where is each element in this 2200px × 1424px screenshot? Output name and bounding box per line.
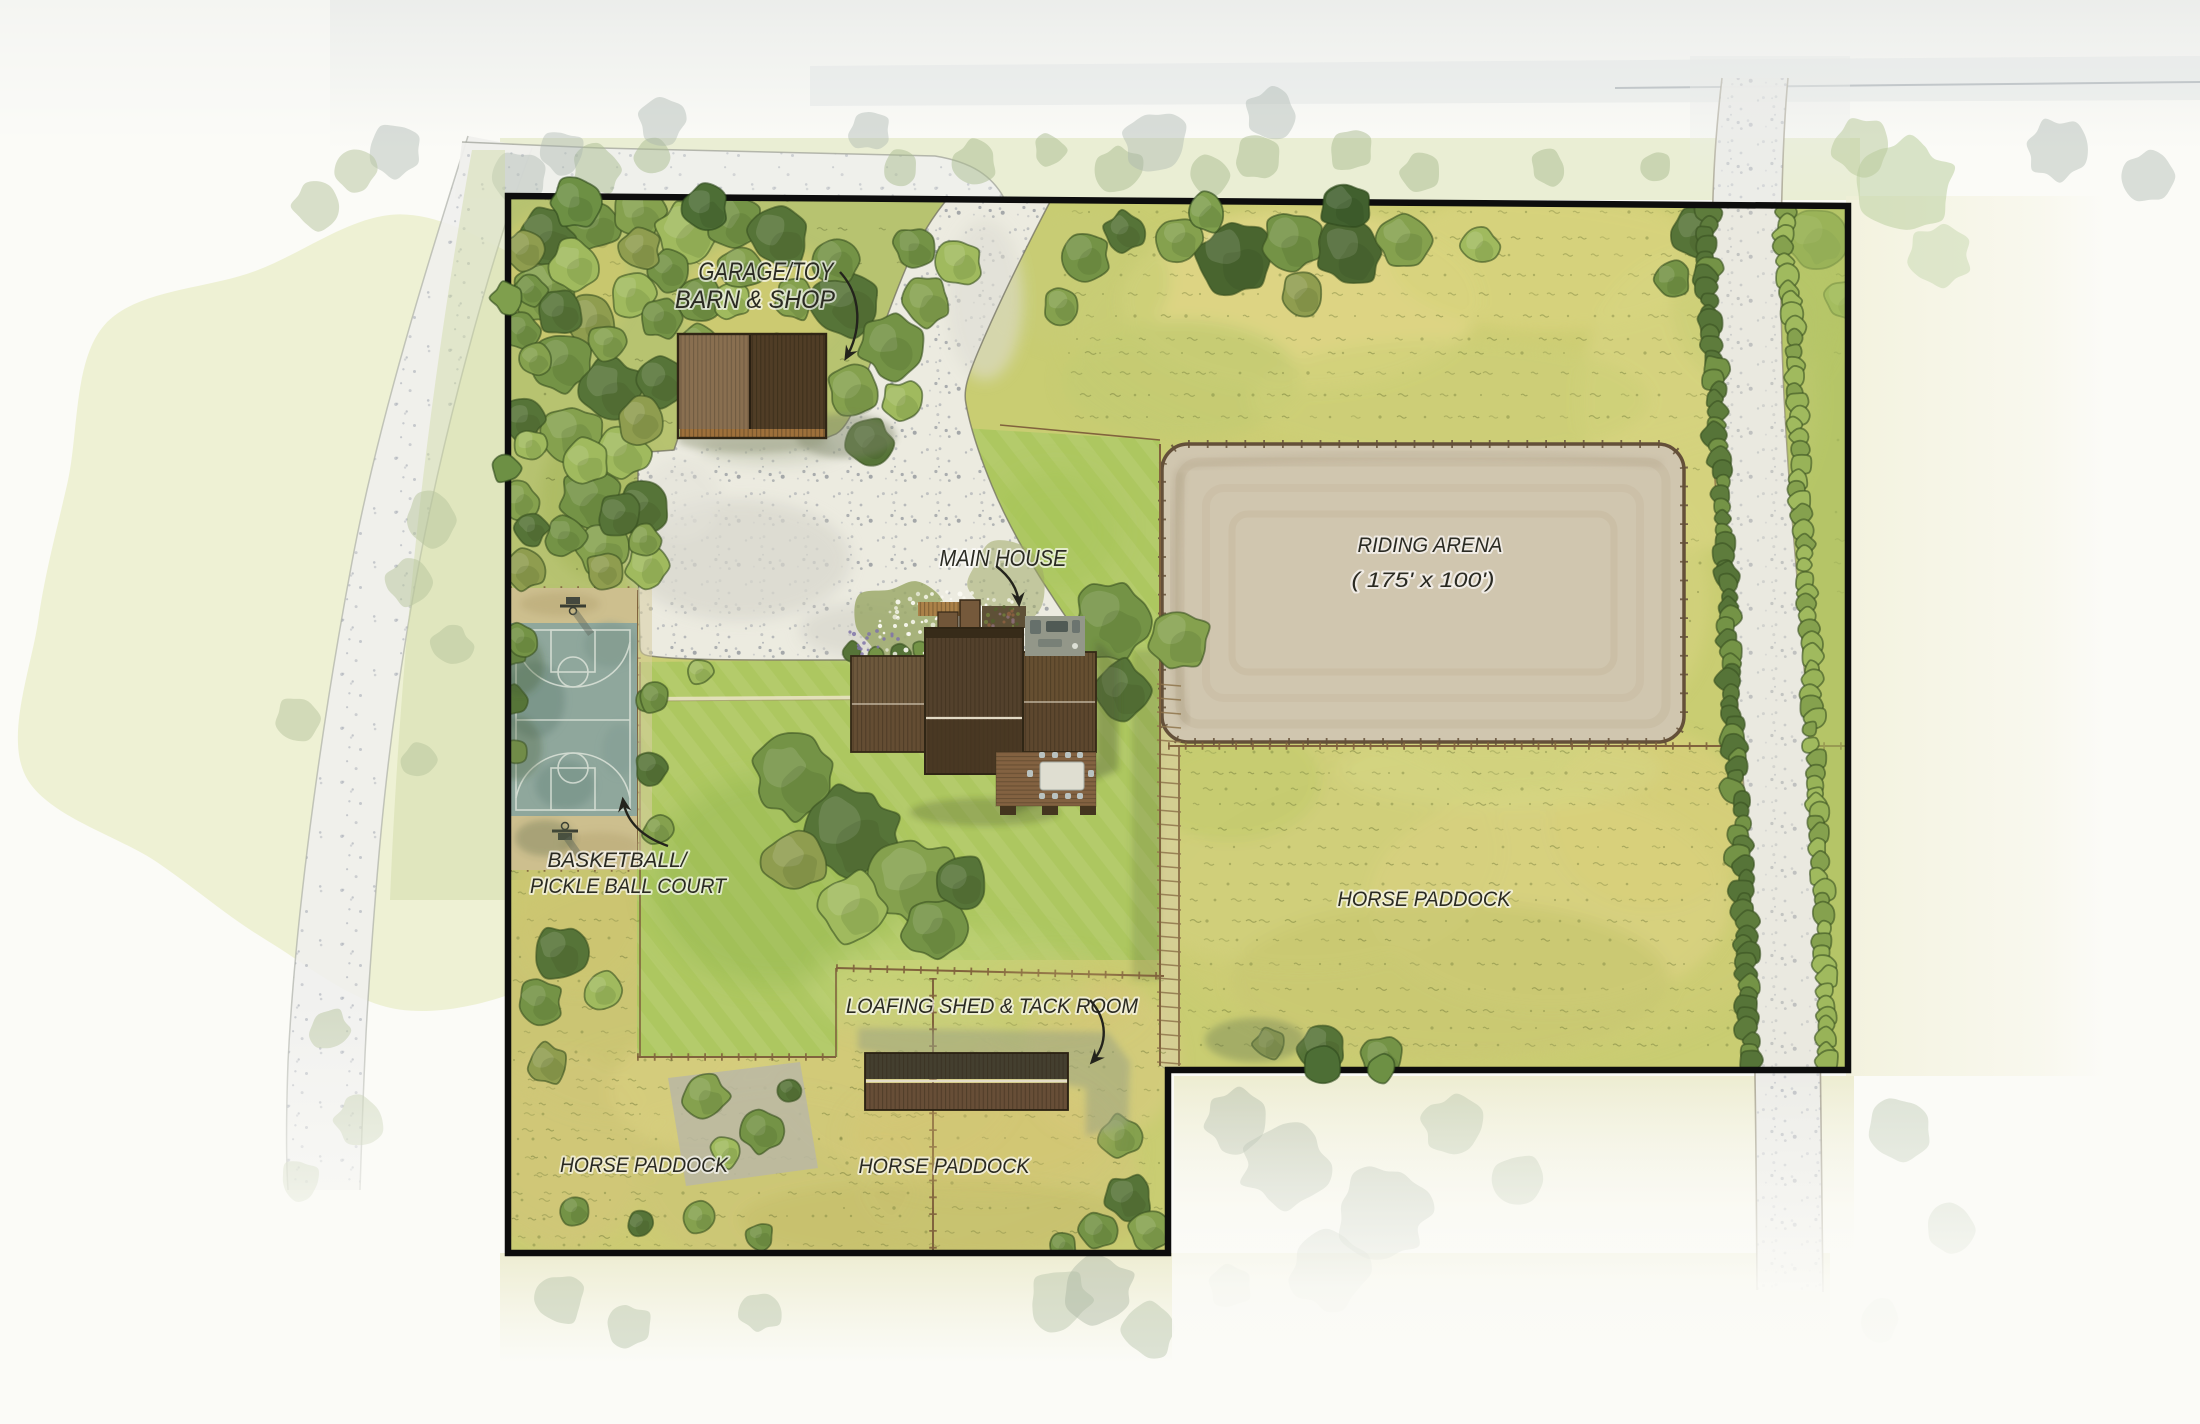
svg-text:GARAGE/TOY: GARAGE/TOY [699,258,836,286]
svg-text:RIDING ARENA: RIDING ARENA [1358,534,1503,557]
svg-text:BASKETBALL/: BASKETBALL/ [548,849,689,872]
svg-text:BARN & SHOP: BARN & SHOP [675,286,835,314]
svg-text:PICKLE BALL COURT: PICKLE BALL COURT [530,875,728,898]
svg-text:HORSE PADDOCK: HORSE PADDOCK [560,1153,729,1177]
svg-text:HORSE PADDOCK: HORSE PADDOCK [1338,887,1513,911]
svg-text:HORSE PADDOCK: HORSE PADDOCK [859,1154,1032,1178]
svg-text:MAIN HOUSE: MAIN HOUSE [940,545,1068,571]
svg-text:( 175' x 100'): ( 175' x 100') [1352,569,1495,592]
